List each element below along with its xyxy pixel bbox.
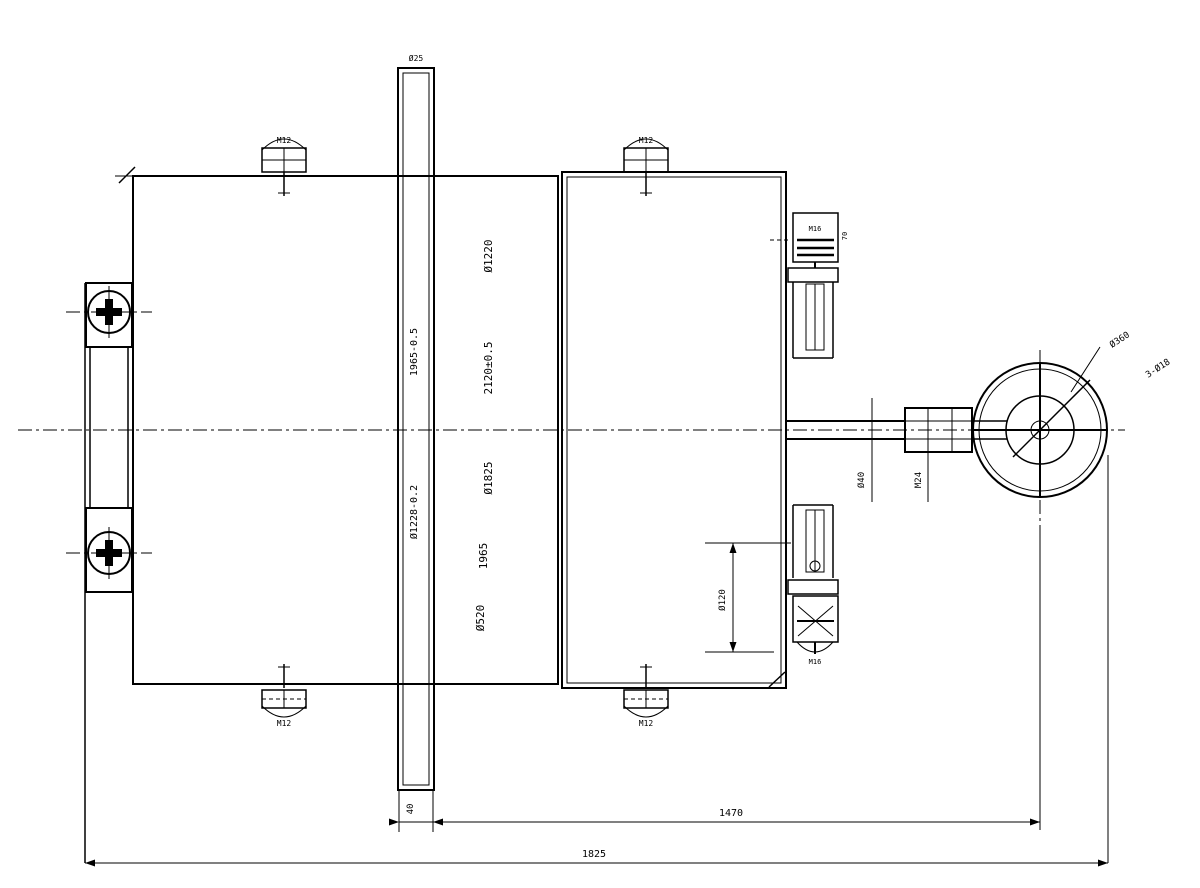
clamp-bottom-right-label: M12	[639, 719, 654, 728]
center-dimension-annotations: Ø1220 2120±0.5 Ø1825 1965 Ø520	[474, 239, 495, 631]
guide-roller-bottom	[66, 527, 152, 579]
clamp-bottom-right: M12	[624, 664, 668, 728]
bracket-top-inner-label: M16	[809, 225, 822, 233]
guide-roller-top	[66, 286, 152, 338]
bracket-top-side-label: 70	[841, 232, 849, 240]
handwheel-note-2-label: 3-Ø18	[1144, 357, 1173, 381]
stem-bracket-bottom: M16	[788, 505, 838, 666]
bracket-dimension: Ø120	[705, 543, 791, 652]
handwheel-note-1-label: Ø360	[1108, 329, 1132, 350]
clamp-top-right-label: M12	[639, 136, 654, 145]
clamp-top-right: M12	[624, 136, 668, 196]
center-dim-4-label: 1965	[477, 543, 490, 570]
clamp-bottom-left-label: M12	[277, 719, 292, 728]
center-dim-1-label: Ø1220	[482, 239, 495, 272]
center-dim-3-label: Ø1825	[482, 461, 495, 494]
handwheel: Ø360 3-Ø18	[973, 329, 1172, 863]
dimension-overall-span: 1825	[85, 849, 1108, 867]
gate-frame-plate: Ø25 1965-0.5 Ø1228-0.2	[398, 53, 434, 790]
plate-dim-upper-label: 1965-0.5	[409, 328, 420, 376]
shaft-dim-label: Ø40	[856, 472, 867, 488]
coupling-dim-label: M24	[914, 472, 924, 488]
bracket-dim-label: Ø120	[717, 589, 728, 611]
left-guide-column	[66, 283, 152, 863]
drawing-sheet: Ø25 1965-0.5 Ø1228-0.2 Ø1220 2120±0.5 Ø1…	[0, 0, 1200, 888]
plate-dim-lower-label: Ø1228-0.2	[408, 485, 420, 539]
dimension-inner-span: 40 1470	[389, 790, 1040, 832]
center-dim-5-label: Ø520	[474, 605, 487, 632]
stem-bracket-top: M16 70	[770, 213, 849, 358]
drawing-canvas: Ø25 1965-0.5 Ø1228-0.2 Ø1220 2120±0.5 Ø1…	[0, 0, 1200, 888]
center-dim-2-label: 2120±0.5	[482, 342, 495, 395]
handwheel-spoke-diagonal	[1013, 380, 1090, 457]
clamp-top-left: M12	[262, 136, 306, 196]
clamp-bottom-left: M12	[262, 664, 306, 728]
inner-span-dim-label: 1470	[719, 808, 743, 819]
plate-thickness-dim-label: 40	[406, 804, 416, 815]
drive-shaft: Ø40 M24	[786, 398, 1007, 502]
clamp-top-left-label: M12	[277, 136, 292, 145]
bracket-bottom-note-label: M16	[809, 658, 822, 666]
plate-top-mark-label: Ø25	[409, 53, 424, 63]
overall-span-dim-label: 1825	[582, 849, 606, 860]
